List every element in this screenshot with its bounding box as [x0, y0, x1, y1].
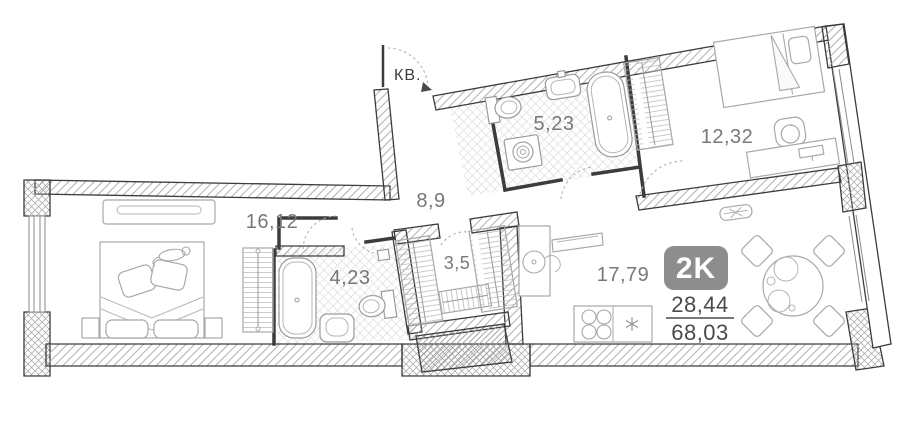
label-bedroom-right: 12,32 — [701, 126, 754, 148]
type-badge-text: 2K — [676, 252, 716, 285]
bedroom-left-door-arc — [303, 216, 336, 249]
chair-2 — [812, 234, 846, 268]
kitchen-sink-counter — [519, 226, 560, 296]
wardrobe-bedroom-left — [243, 248, 273, 332]
label-bedroom-left: 16,12 — [246, 211, 299, 233]
bottom-wall-b — [530, 344, 858, 366]
bottom-wall-a — [46, 344, 402, 366]
floor-plan-svg: КВ. 16,12 8,9 5,23 12,32 4,23 3,5 17,79 … — [0, 0, 900, 446]
top-wall-left — [35, 180, 390, 200]
right-wall-mid-block — [838, 162, 866, 212]
towel-holder — [377, 249, 389, 260]
living-area-value: 28,44 — [671, 292, 729, 317]
tv-bench — [552, 233, 603, 252]
label-hallway: 8,9 — [416, 190, 445, 212]
tv-shelf — [103, 200, 215, 224]
floor-plan: КВ. 16,12 8,9 5,23 12,32 4,23 3,5 17,79 … — [0, 0, 900, 446]
apartment-annotation: 2K 28,44 68,03 — [664, 246, 734, 345]
dining-set — [740, 234, 846, 338]
label-kitchen-living: 17,79 — [597, 264, 650, 286]
chair — [740, 234, 774, 268]
chair-3 — [740, 304, 774, 338]
label-bathroom-small: 4,23 — [330, 267, 371, 289]
nightstand-right — [205, 318, 222, 338]
bedroom-right-door-arc — [640, 161, 684, 194]
label-bathroom-top: 5,23 — [534, 113, 575, 135]
label-wardrobe-room: 3,5 — [444, 253, 471, 273]
headboard-cushion-2 — [154, 320, 198, 338]
left-window — [29, 216, 45, 312]
closet-door-arc — [441, 232, 469, 245]
chair-4 — [812, 304, 846, 338]
bed-single — [713, 26, 824, 107]
headboard-cushion — [106, 320, 148, 338]
nightstand-left — [82, 318, 99, 338]
bathroom-small-top-wall — [276, 246, 344, 256]
vent-symbol — [719, 204, 752, 221]
entry-slant-wall — [374, 89, 399, 200]
closet-furniture — [396, 226, 518, 326]
entrance-label: КВ. — [394, 67, 421, 84]
entrance-door-arrow — [421, 82, 432, 92]
washing-machine — [504, 135, 542, 171]
bathroom-small-right-stub — [366, 238, 394, 242]
kitchen-counter — [574, 306, 652, 342]
dining-table — [763, 256, 823, 316]
bedroom-right-bottom-wall — [636, 168, 841, 210]
total-area-value: 68,03 — [671, 320, 729, 345]
bedroom-left-furniture — [82, 200, 273, 338]
left-wall-top-block — [24, 180, 50, 216]
